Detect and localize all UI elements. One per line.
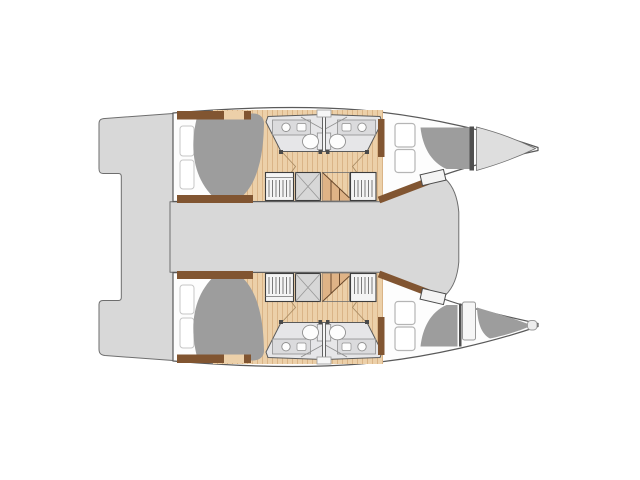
- hull-port: [173, 107, 538, 203]
- bow-fitting: [528, 321, 538, 331]
- bow-locker-deck: [477, 127, 536, 171]
- floor-plan-canvas: [0, 0, 640, 480]
- collision-bulkhead: [470, 127, 475, 171]
- catamaran-floor-plan: [0, 0, 640, 480]
- skipper-cabin-door: [463, 302, 476, 340]
- stern-platform: [99, 114, 173, 361]
- hull-starboard: [173, 271, 538, 367]
- skipper-bulkhead: [459, 304, 462, 347]
- skipper-berth-mattress: [477, 308, 532, 339]
